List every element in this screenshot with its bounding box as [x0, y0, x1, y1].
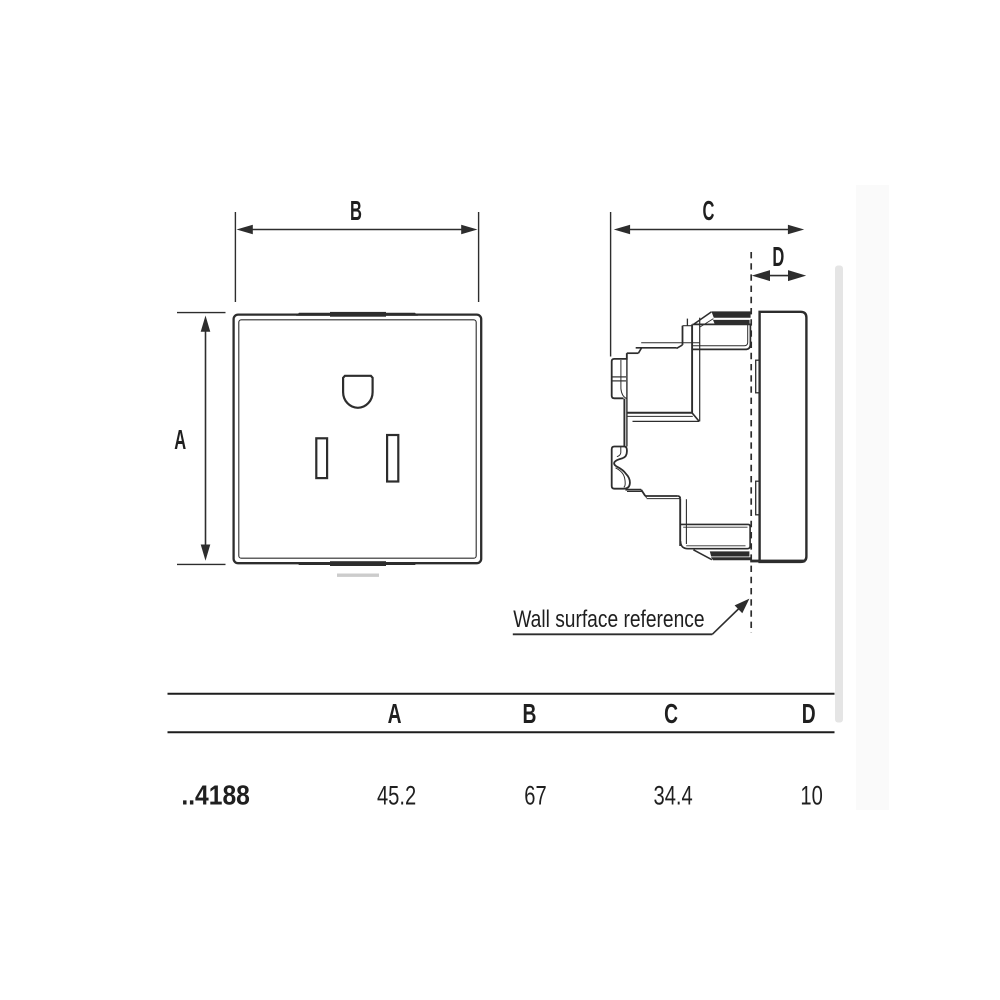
svg-text:34.4: 34.4 — [654, 781, 693, 810]
svg-text:67: 67 — [524, 781, 546, 810]
svg-text:C: C — [703, 195, 715, 227]
svg-text:10: 10 — [800, 781, 822, 810]
svg-text:45.2: 45.2 — [377, 781, 416, 810]
svg-text:B: B — [522, 700, 536, 730]
svg-text:C: C — [664, 700, 678, 730]
svg-text:A: A — [388, 700, 402, 730]
svg-text:D: D — [802, 700, 816, 730]
svg-text:A: A — [174, 424, 186, 456]
svg-text:B: B — [350, 195, 362, 227]
svg-text:..4188: ..4188 — [181, 779, 249, 811]
svg-text:D: D — [772, 241, 784, 273]
svg-text:Wall surface reference: Wall surface reference — [513, 605, 704, 633]
